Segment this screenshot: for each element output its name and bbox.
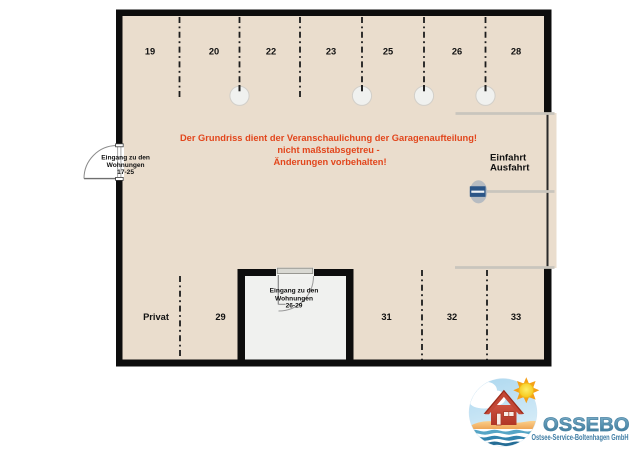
svg-text:32: 32 bbox=[447, 312, 457, 322]
svg-text:Privat: Privat bbox=[143, 312, 169, 322]
svg-text:20: 20 bbox=[209, 46, 219, 56]
svg-text:26-29: 26-29 bbox=[286, 302, 303, 309]
svg-text:29: 29 bbox=[215, 312, 225, 322]
svg-text:23: 23 bbox=[326, 46, 336, 56]
svg-text:Änderungen vorbehalten!: Änderungen vorbehalten! bbox=[273, 157, 386, 167]
svg-text:Ausfahrt: Ausfahrt bbox=[490, 163, 530, 174]
svg-text:Der Grundriss dient der Verans: Der Grundriss dient der Veranschaulichun… bbox=[180, 133, 477, 143]
svg-text:22: 22 bbox=[266, 46, 276, 56]
svg-text:Wohnungen: Wohnungen bbox=[107, 162, 145, 169]
svg-text:33: 33 bbox=[511, 312, 521, 322]
svg-text:Eingang zu den: Eingang zu den bbox=[270, 288, 319, 295]
svg-text:19: 19 bbox=[145, 46, 155, 56]
svg-text:17-25: 17-25 bbox=[117, 169, 134, 176]
svg-text:28: 28 bbox=[511, 46, 521, 56]
svg-text:Ostsee-Service-Boltenhagen Gmb: Ostsee-Service-Boltenhagen GmbH bbox=[532, 433, 629, 442]
svg-text:26: 26 bbox=[452, 46, 462, 56]
svg-text:nicht maßstabsgetreu -: nicht maßstabsgetreu - bbox=[277, 145, 379, 155]
svg-text:Eingang zu den: Eingang zu den bbox=[101, 155, 150, 162]
svg-text:Wohnungen: Wohnungen bbox=[275, 295, 313, 302]
svg-text:25: 25 bbox=[383, 46, 393, 56]
svg-text:31: 31 bbox=[381, 312, 391, 322]
